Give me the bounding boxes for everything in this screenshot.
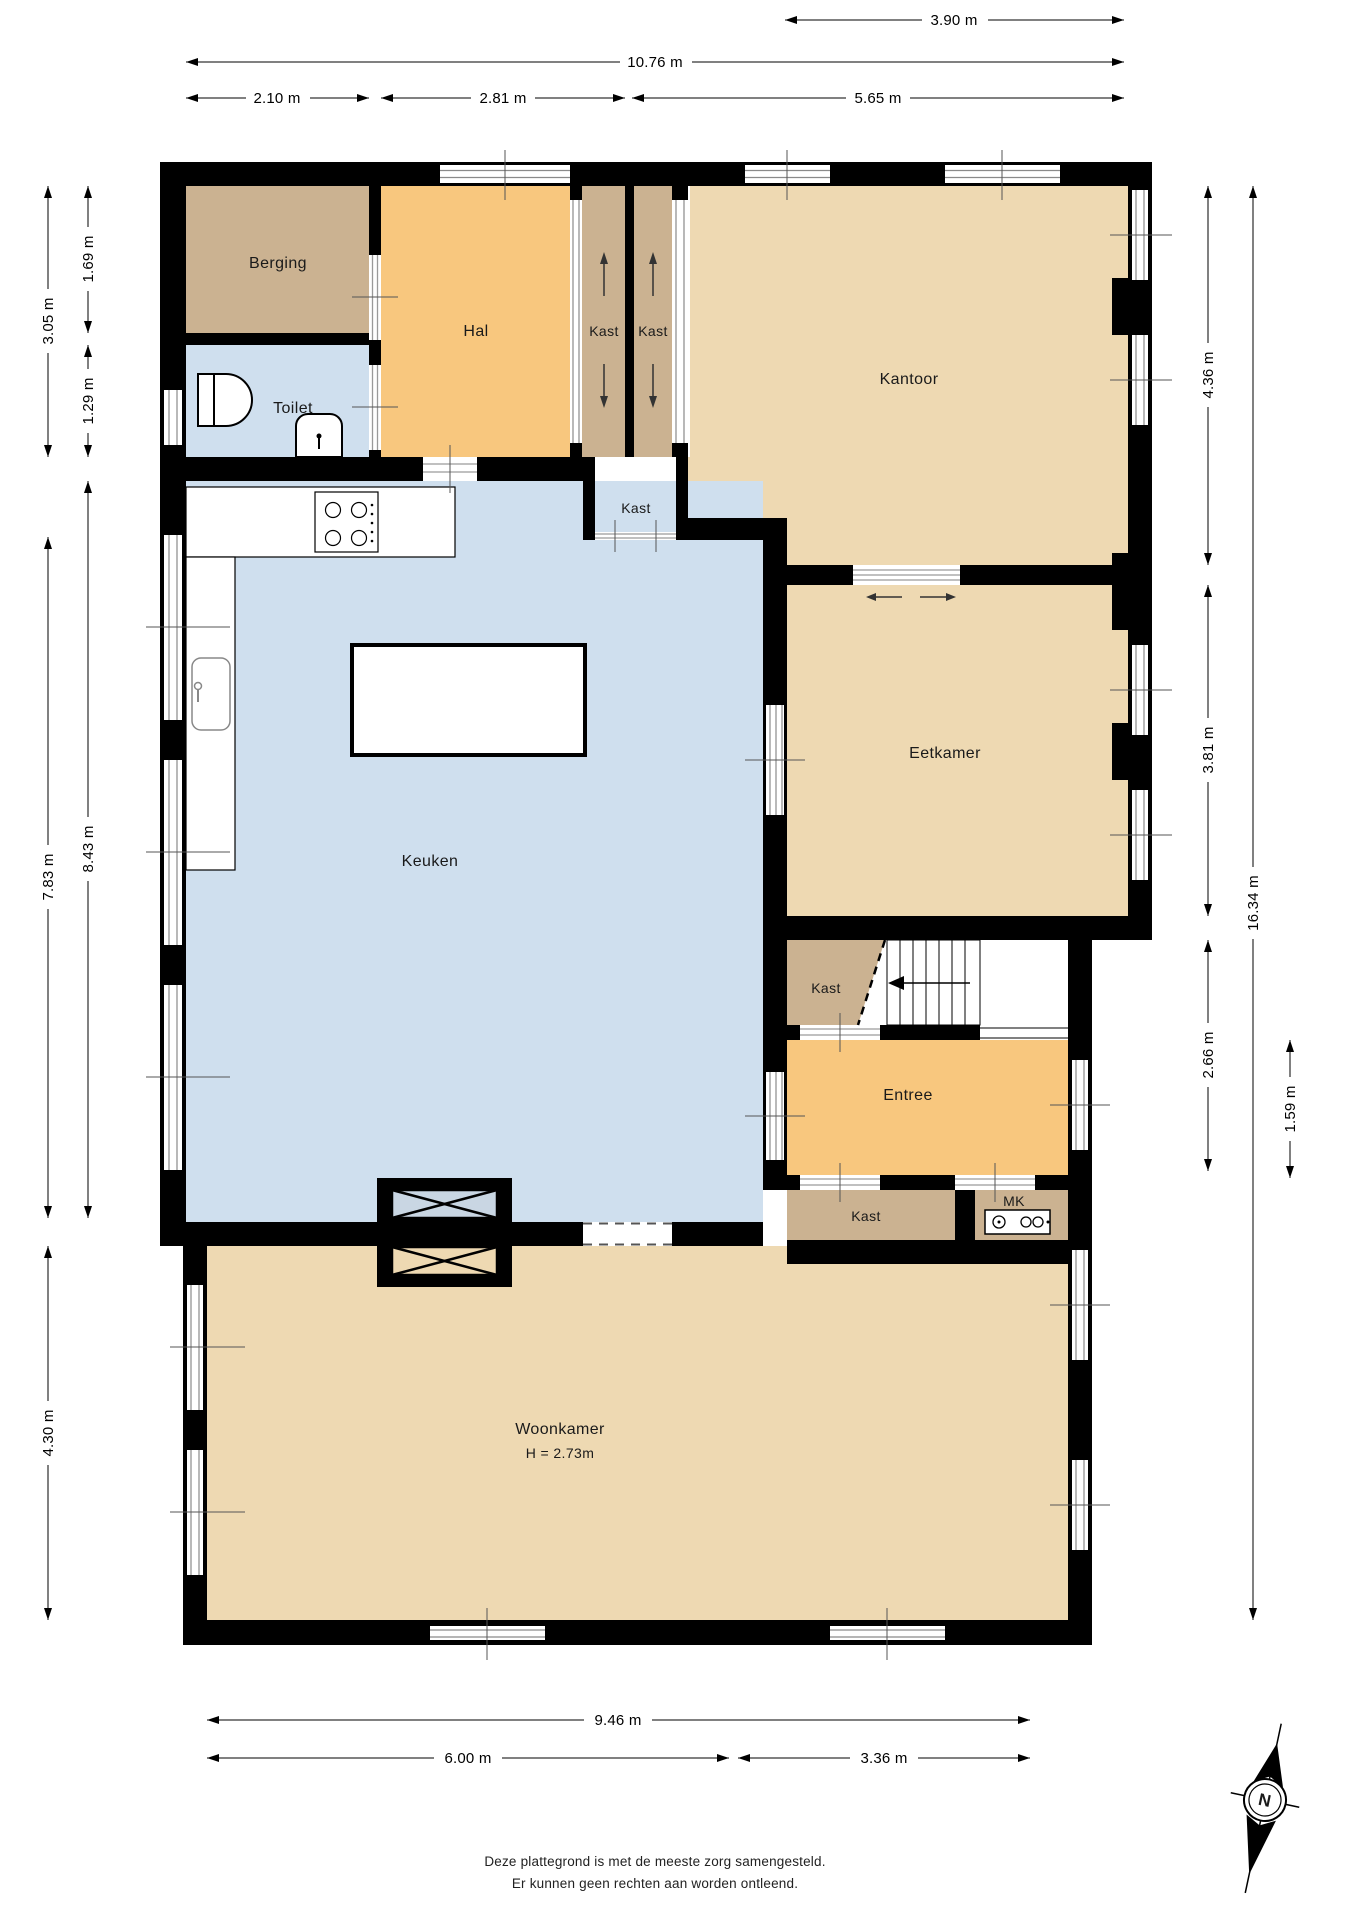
- dim-woonkamer-left-width: 6.00 m: [444, 1750, 491, 1767]
- room-label-kast-small: Kast: [621, 500, 651, 516]
- dim-toilet-height: 1.29 m: [80, 377, 97, 424]
- dim-berging-width: 2.10 m: [253, 90, 300, 107]
- room-label-kast-stairs: Kast: [811, 980, 841, 996]
- dim-woonkamer-right-width: 3.36 m: [860, 1750, 907, 1767]
- dim-entree-height: 1.59 m: [1282, 1085, 1299, 1132]
- dim-berging-toilet-height: 3.05 m: [40, 297, 57, 344]
- toilet-tank: [198, 374, 214, 426]
- dim-hal-width: 2.81 m: [479, 90, 526, 107]
- dim-total-height: 16.34 m: [1245, 875, 1262, 931]
- room-label-entree: Entree: [883, 1087, 933, 1104]
- dim-eetkamer-width: 3.90 m: [930, 12, 977, 29]
- room-label-kast-closet-2: Kast: [638, 323, 668, 339]
- footer-line-1: Deze plattegrond is met de meeste zorg s…: [484, 1854, 825, 1869]
- dim-total-width: 10.76 m: [627, 54, 683, 71]
- room-label-eetkamer: Eetkamer: [909, 745, 981, 762]
- floorplan-page: Berging Toilet Hal Kast Kast Kantoor Kas…: [0, 0, 1358, 1920]
- room-label-toilet: Toilet: [273, 400, 313, 417]
- kitchen-island: [352, 645, 585, 755]
- room-label-mk: MK: [1003, 1193, 1025, 1209]
- room-label-kast-closet-1: Kast: [589, 323, 619, 339]
- opening-keuken-woonkamer: [583, 1222, 672, 1246]
- dim-kantoor-height: 4.36 m: [1200, 351, 1217, 398]
- footer-disclaimer: Deze plattegrond is met de meeste zorg s…: [484, 1854, 825, 1891]
- room-label-berging: Berging: [249, 255, 307, 272]
- dim-woonkamer-width: 9.46 m: [594, 1712, 641, 1729]
- dim-berging-height: 1.69 m: [80, 235, 97, 282]
- room-label-woonkamer: Woonkamer: [515, 1421, 605, 1438]
- dim-entree-zone-height: 2.66 m: [1200, 1031, 1217, 1078]
- dim-kantoor-width: 5.65 m: [854, 90, 901, 107]
- footer-line-2: Er kunnen geen rechten aan worden ontlee…: [512, 1876, 798, 1891]
- compass-north-icon: N: [1211, 1716, 1315, 1900]
- dim-eetkamer-height: 3.81 m: [1200, 726, 1217, 773]
- room-woonkamer: [207, 1246, 1068, 1620]
- room-note-woonkamer-height: H = 2.73m: [526, 1445, 595, 1461]
- room-label-kast-hall: Kast: [851, 1208, 881, 1224]
- room-label-kantoor: Kantoor: [880, 371, 939, 388]
- floorplan-drawing: Berging Toilet Hal Kast Kast Kantoor Kas…: [0, 0, 1358, 1920]
- stove-icon: [315, 492, 378, 552]
- room-keuken: [186, 481, 763, 1222]
- room-label-keuken: Keuken: [402, 853, 459, 870]
- dim-keuken-height-inner: 8.43 m: [80, 825, 97, 872]
- meter-cupboard-fixtures: [985, 1210, 1050, 1234]
- room-hal: [381, 186, 570, 457]
- room-kast-closet-1: [582, 186, 625, 457]
- dim-woonkamer-height: 4.30 m: [40, 1409, 57, 1456]
- window-left-toilet: [164, 390, 182, 445]
- dim-keuken-height-outer: 7.83 m: [40, 853, 57, 900]
- room-floors: [186, 186, 1128, 1620]
- room-entree: [787, 1040, 1068, 1175]
- room-label-hal: Hal: [463, 323, 488, 340]
- room-kast-closet-2: [634, 186, 672, 457]
